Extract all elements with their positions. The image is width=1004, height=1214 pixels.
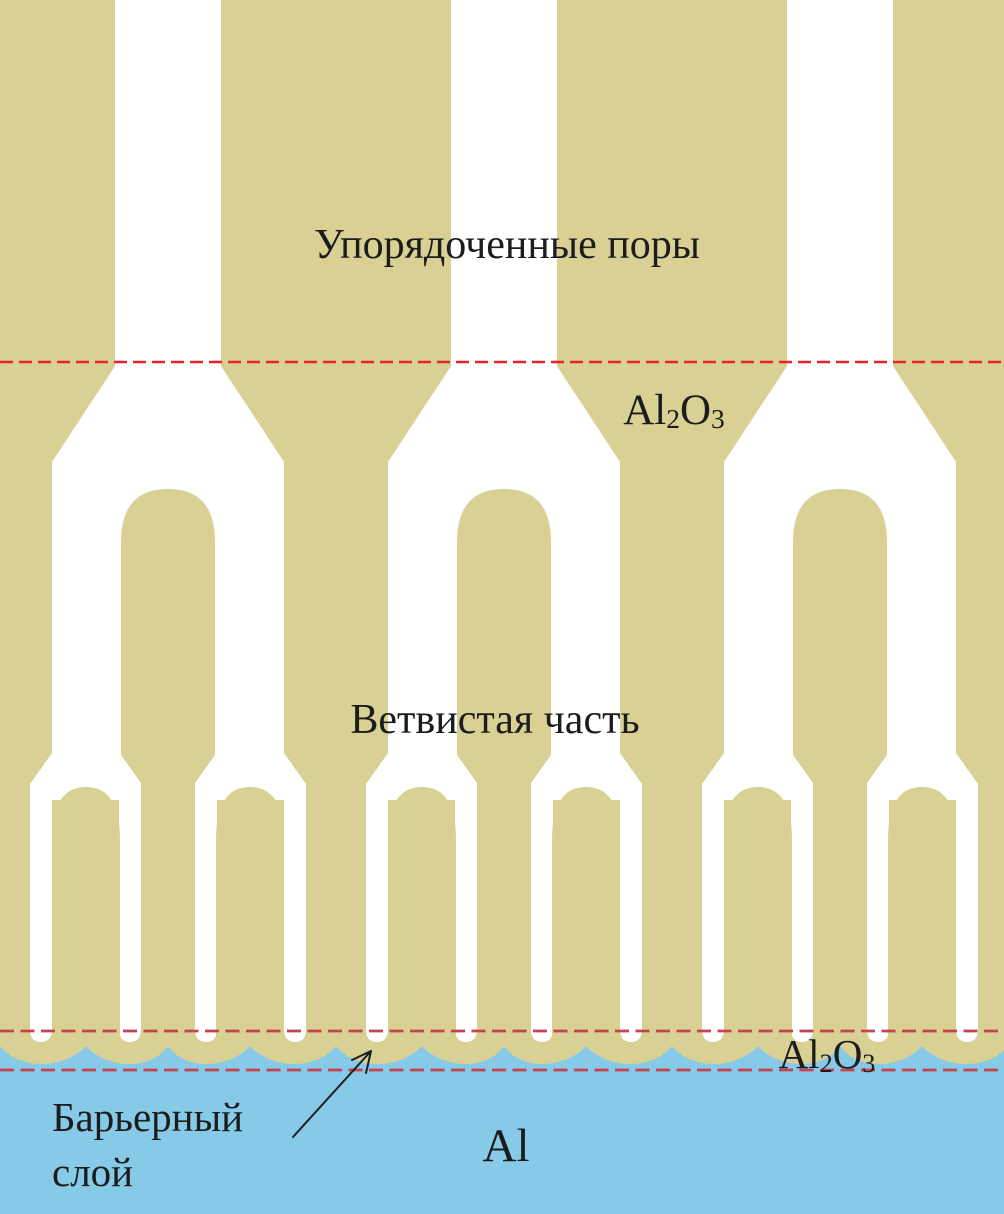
al2o3-base1: Al [623, 387, 666, 434]
ordered-pores-label: Упорядоченные поры [314, 221, 700, 269]
barrier-layer-label: Барьерный слой [52, 1090, 243, 1199]
al2o3-sub2: 3 [711, 403, 725, 434]
al2o3-base2: O [833, 1031, 863, 1077]
branched-part-label: Ветвистая часть [350, 696, 639, 744]
barrier-layer-label-line1: Барьерный [52, 1090, 243, 1145]
al2o3-label-top: Al2O3 [623, 386, 725, 435]
barrier-layer-label-line2: слой [52, 1145, 243, 1200]
al2o3-base1: Al [779, 1031, 820, 1077]
al2o3-sub2: 3 [862, 1049, 875, 1078]
al2o3-label-bottom: Al2O3 [779, 1030, 876, 1078]
anodic-alumina-diagram: Упорядоченные поры Al2O3 Ветвистая часть… [0, 0, 1004, 1214]
al2o3-base2: O [680, 387, 711, 434]
al2o3-sub1: 2 [820, 1049, 833, 1078]
aluminum-label: Al [483, 1119, 530, 1173]
al2o3-sub1: 2 [666, 403, 680, 434]
